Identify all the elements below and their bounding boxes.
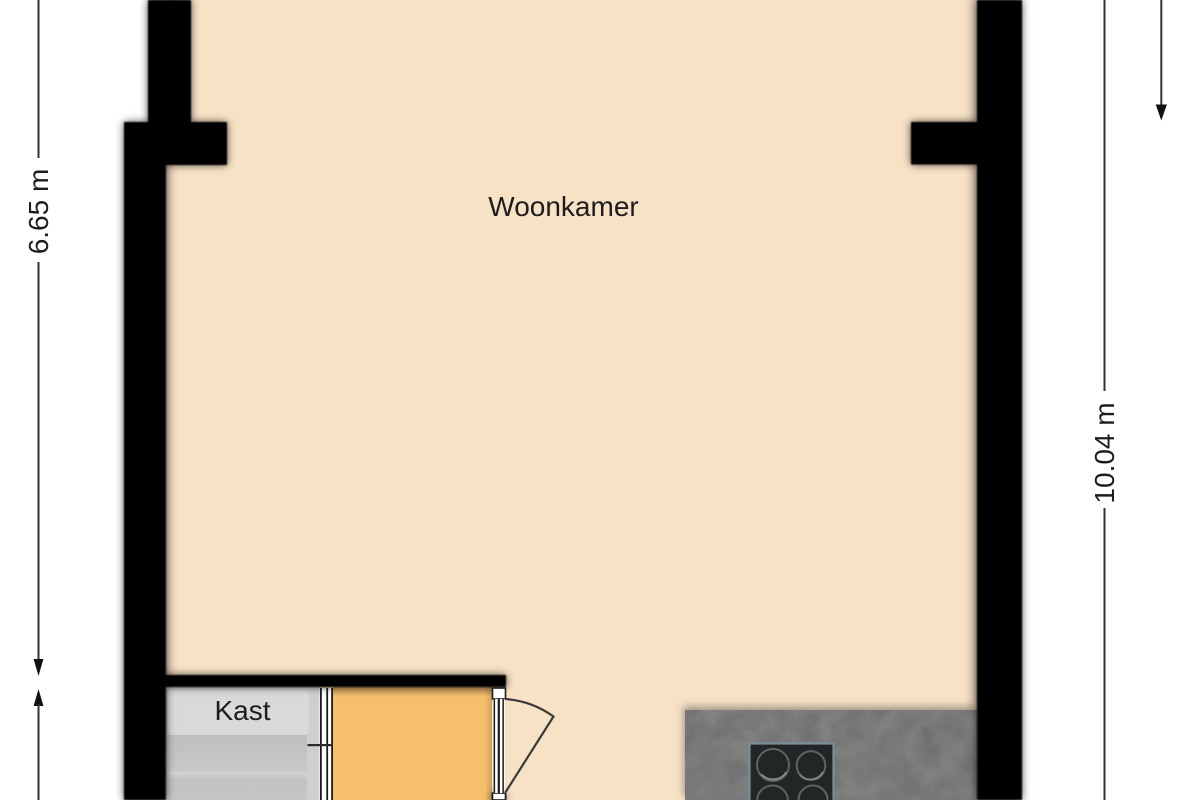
svg-text:6.65 m: 6.65 m — [23, 169, 54, 255]
svg-text:Woonkamer: Woonkamer — [488, 191, 638, 222]
svg-text:10.04 m: 10.04 m — [1089, 402, 1120, 503]
svg-text:Kast: Kast — [214, 695, 270, 726]
